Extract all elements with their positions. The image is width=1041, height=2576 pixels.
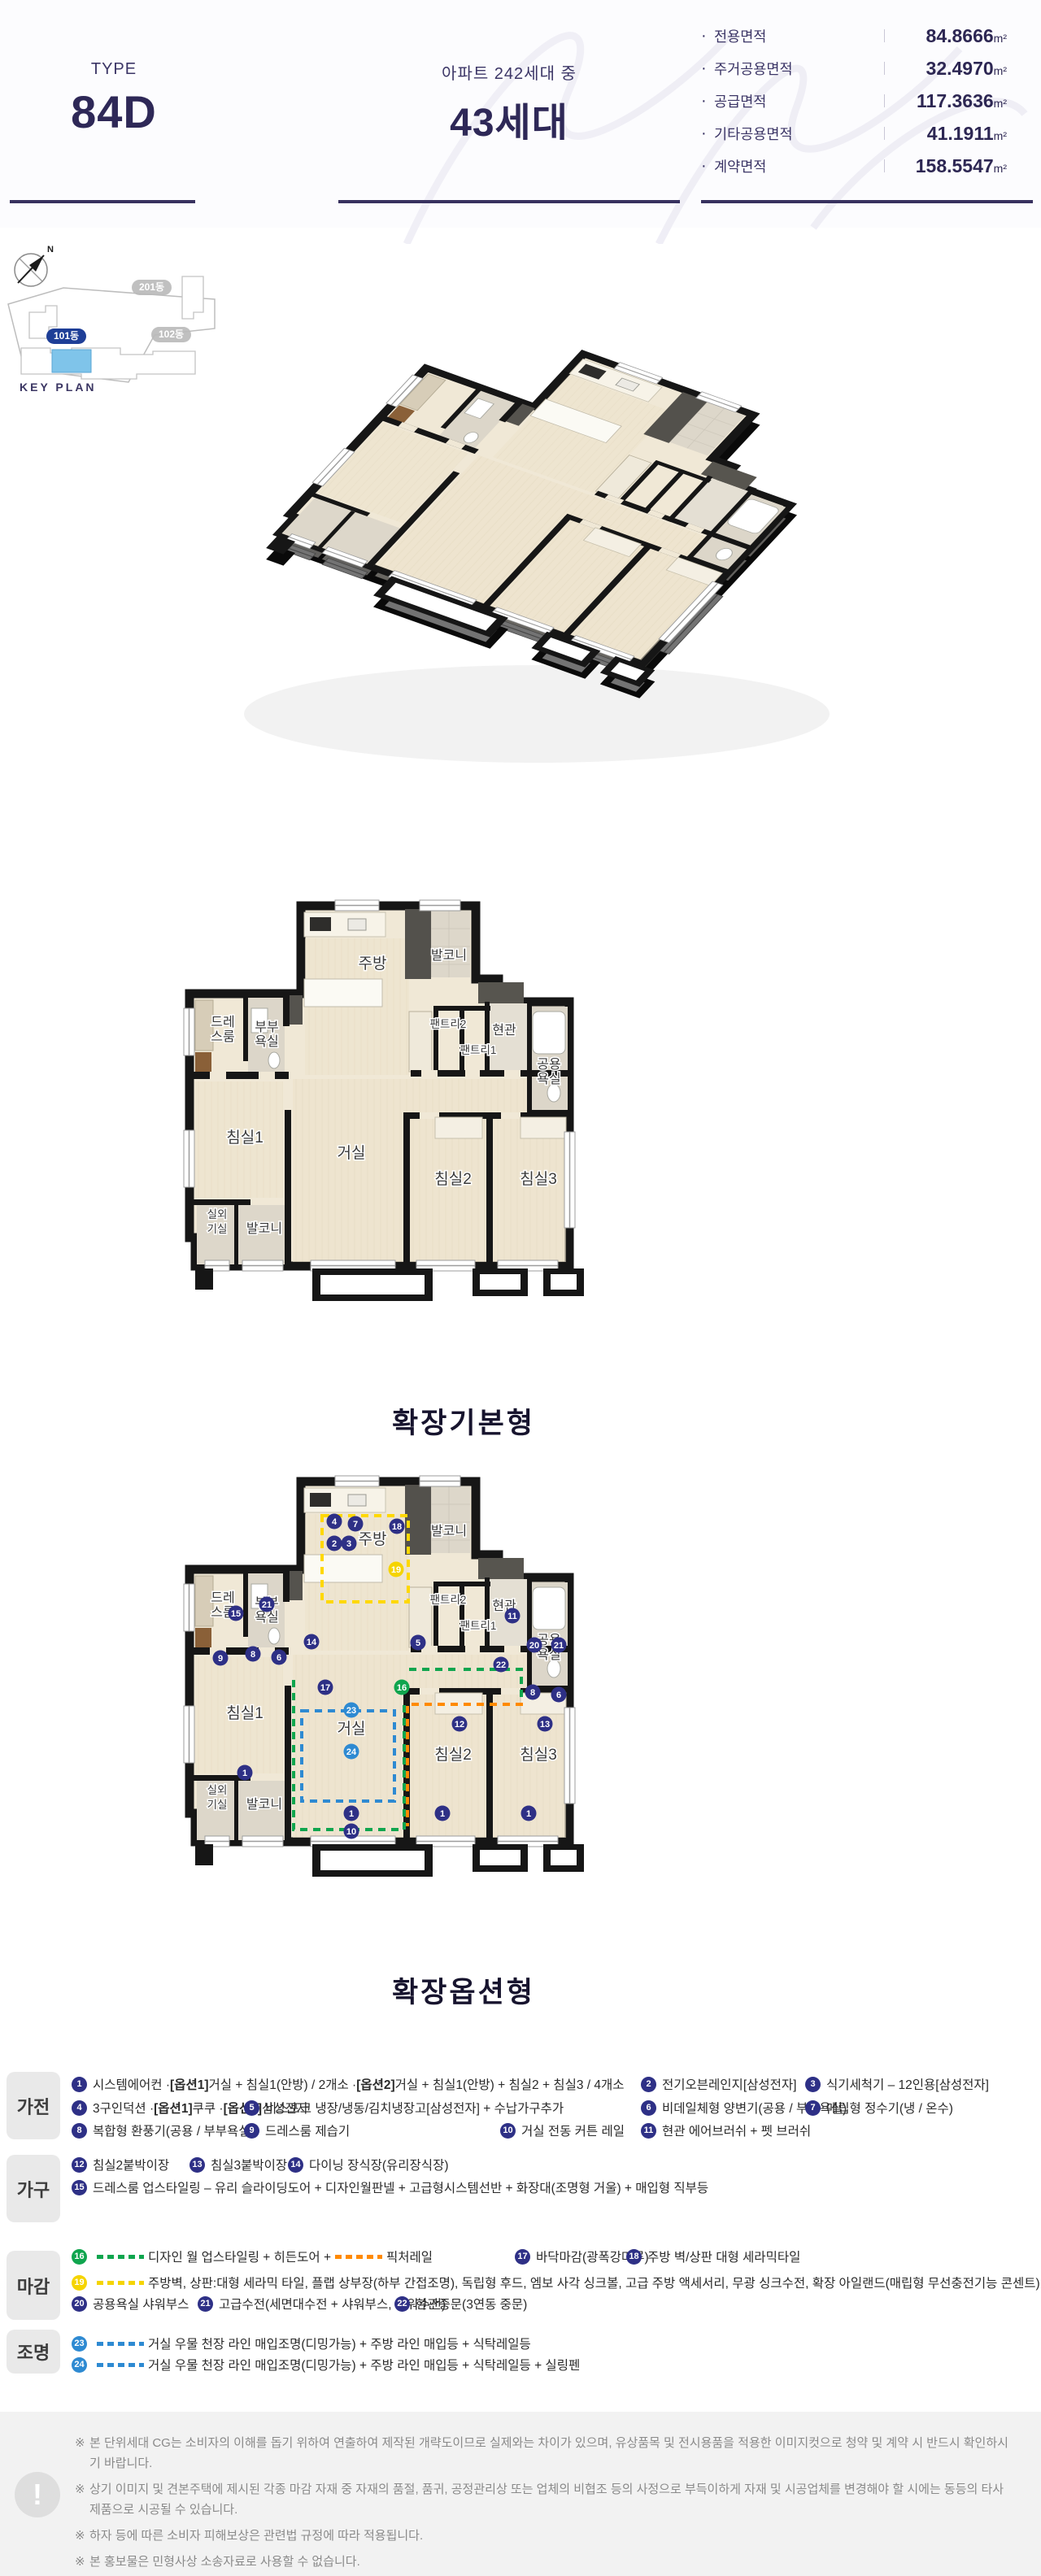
- units-label: 아파트 242세대 중: [338, 60, 680, 84]
- legend-item: 7매립형 정수기(냉 / 온수): [805, 2099, 953, 2117]
- legend-item: 24거실 우물 천장 라인 매입조명(디밍가능) + 주방 라인 매입등 + 식…: [72, 2356, 580, 2374]
- disclaimer-note: ※하자 등에 따른 소비자 피해보상은 관련법 규정에 따라 적용됩니다.: [75, 2526, 1010, 2546]
- legend-item: 20공용욕실 샤워부스: [72, 2295, 189, 2313]
- legend-item: 1시스템에어컨 · [옵션1] 거실 + 침실1(안방) / 2개소 · [옵션…: [72, 2075, 625, 2093]
- header: TYPE 84D 아파트 242세대 중 43세대 ·전용면적84.8666m²…: [0, 0, 1041, 228]
- legend-badge: 19: [72, 2275, 87, 2291]
- legend-badge: 8: [72, 2123, 87, 2139]
- svg-text:12: 12: [455, 1720, 464, 1730]
- room-label: 팬트리2: [430, 1018, 467, 1030]
- legend-badge: 14: [288, 2157, 303, 2173]
- legend-badge: 10: [500, 2123, 516, 2139]
- legend-group-chip: 마감: [7, 2251, 60, 2320]
- units-value: 43세대: [338, 90, 680, 147]
- svg-text:1: 1: [440, 1809, 445, 1819]
- legend-group-chip: 가전: [7, 2072, 60, 2139]
- svg-text:18: 18: [392, 1522, 402, 1532]
- legend-item: 16디자인 월 업스타일링 + 히든도어 + 픽처레일: [72, 2247, 433, 2265]
- svg-text:21: 21: [554, 1641, 564, 1651]
- room-label: 팬트리1: [460, 1620, 497, 1632]
- svg-text:3: 3: [346, 1539, 351, 1549]
- svg-text:6: 6: [556, 1690, 561, 1700]
- legend-badge: 2: [641, 2077, 656, 2092]
- svg-text:1: 1: [242, 1769, 247, 1778]
- legend-group-chip: 가구: [7, 2155, 60, 2222]
- legend-item: 8복합형 환풍기(공용 / 부부욕실): [72, 2121, 255, 2139]
- room-label: 주방: [359, 1530, 387, 1548]
- svg-text:N: N: [47, 245, 54, 255]
- legend-badge: 4: [72, 2100, 87, 2116]
- dash-swatch: [97, 2342, 144, 2346]
- isometric-render: [155, 259, 903, 783]
- legend-badge: 22: [394, 2296, 410, 2312]
- legend-item: 19주방벽, 상판:대형 세라믹 타일, 플랩 상부장(하부 간접조명), 독립…: [72, 2274, 1040, 2291]
- floorplan-option: 주방발코니드레스룸부부욕실팬트리2현관팬트리1공용욕실침실1거실침실2침실3실외…: [163, 1464, 602, 1935]
- legend-badge: 21: [198, 2296, 213, 2312]
- area-row: ·기타공용면적41.1911m²: [701, 117, 1033, 150]
- svg-text:21: 21: [262, 1600, 272, 1610]
- room-label: 팬트리2: [430, 1594, 467, 1606]
- svg-text:11: 11: [507, 1612, 517, 1621]
- disclaimer-note: ※본 홍보물은 민형사상 소송자료로 사용할 수 없습니다.: [75, 2552, 1010, 2572]
- room-label: 발코니: [431, 948, 467, 963]
- area-table: ·전용면적84.8666m²·주거공용면적32.4970m²·공급면적117.3…: [701, 20, 1033, 182]
- svg-text:2: 2: [332, 1539, 337, 1549]
- legend-badge: 1: [72, 2077, 87, 2092]
- area-row: ·전용면적84.8666m²: [701, 20, 1033, 52]
- svg-text:23: 23: [346, 1706, 356, 1716]
- legend-item: 15드레스룸 업스타일링 – 유리 슬라이딩도어 + 디자인월판넬 + 고급형시…: [72, 2178, 708, 2196]
- disclaimer-note: ※상기 이미지 및 견본주택에 제시된 각종 마감 자재 중 자재의 품절, 품…: [75, 2479, 1010, 2520]
- legend-badge: 20: [72, 2296, 87, 2312]
- legend-item: 3식기세척기 – 12인용[삼성전자]: [805, 2075, 989, 2093]
- header-underline: [10, 200, 195, 203]
- room-label: 침실1: [226, 1129, 264, 1147]
- legend-item: 23거실 우물 천장 라인 매입조명(디밍가능) + 주방 라인 매입등 + 식…: [72, 2334, 531, 2352]
- type-block: TYPE 84D: [24, 60, 203, 138]
- legend-item: 12침실2붙박이장: [72, 2156, 169, 2173]
- legend-badge: 15: [72, 2180, 87, 2195]
- svg-text:24: 24: [346, 1747, 357, 1757]
- dash-swatch: [335, 2255, 382, 2259]
- svg-text:20: 20: [529, 1641, 539, 1651]
- svg-text:5: 5: [416, 1638, 420, 1648]
- legend-item: 18주방 벽/상판 대형 세라믹타일: [626, 2247, 800, 2265]
- legend-badge: 23: [72, 2336, 87, 2352]
- svg-text:9: 9: [218, 1654, 223, 1664]
- legend-item: 2전기오븐레인지[삼성전자]: [641, 2075, 796, 2093]
- room-label: 발코니: [246, 1797, 282, 1812]
- footer-disclaimer: ! ※본 단위세대 CG는 소비자의 이해를 돕기 위하여 연출하여 제작된 개…: [0, 2412, 1041, 2576]
- key-plan-title: KEY PLAN: [20, 381, 97, 394]
- dash-swatch: [97, 2281, 144, 2285]
- room-label: 팬트리1: [460, 1044, 497, 1056]
- units-block: 아파트 242세대 중 43세대: [338, 60, 680, 147]
- svg-text:4: 4: [332, 1517, 338, 1527]
- room-label: 침실3: [520, 1746, 557, 1764]
- legend-badge: 5: [244, 2100, 259, 2116]
- type-label: TYPE: [24, 60, 203, 79]
- disclaimer-note: ※본 단위세대 CG는 소비자의 이해를 돕기 위하여 연출하여 제작된 개략도…: [75, 2433, 1010, 2474]
- floorplan-basic: 주방발코니드레스룸부부욕실팬트리2현관팬트리1공용욕실침실1거실침실2침실3실외…: [163, 888, 602, 1360]
- svg-text:15: 15: [231, 1609, 241, 1619]
- svg-text:13: 13: [540, 1720, 550, 1730]
- compass-icon: N: [15, 245, 54, 286]
- legend-item: 11현관 에어브러쉬 + 펫 브러쉬: [641, 2121, 811, 2139]
- room-label: 침실2: [434, 1170, 472, 1188]
- svg-text:1: 1: [526, 1809, 531, 1819]
- building-label: 101동: [46, 329, 86, 344]
- svg-text:10: 10: [346, 1827, 356, 1837]
- room-label: 현관: [492, 1023, 516, 1038]
- legend-badge: 12: [72, 2157, 87, 2173]
- legend-item: 22현관중문(3연동 중문): [394, 2295, 527, 2313]
- legend-badge: 6: [641, 2100, 656, 2116]
- svg-text:1: 1: [349, 1809, 354, 1819]
- svg-text:6: 6: [277, 1653, 281, 1663]
- room-label: 침실2: [434, 1746, 472, 1764]
- header-underline: [338, 200, 680, 203]
- svg-text:22: 22: [496, 1660, 506, 1670]
- area-row: ·주거공용면적32.4970m²: [701, 52, 1033, 85]
- room-label: 침실3: [520, 1170, 557, 1188]
- room-label: 침실1: [226, 1704, 264, 1722]
- legend-badge: 16: [72, 2249, 87, 2265]
- svg-text:16: 16: [397, 1683, 407, 1693]
- area-row: ·공급면적117.3636m²: [701, 85, 1033, 117]
- room-label: 주방: [359, 955, 387, 973]
- svg-text:17: 17: [320, 1683, 330, 1693]
- legend-item: 9드레스룸 제습기: [244, 2121, 350, 2139]
- room-label: 거실: [338, 1144, 366, 1162]
- area-row: ·계약면적158.5547m²: [701, 150, 1033, 182]
- dash-swatch: [97, 2255, 144, 2259]
- room-label: 거실: [338, 1720, 366, 1738]
- svg-text:19: 19: [391, 1565, 401, 1575]
- room-label: 발코니: [246, 1221, 282, 1236]
- svg-text:14: 14: [307, 1638, 317, 1647]
- legend-item: 14다이닝 장식장(유리장식장): [288, 2156, 449, 2173]
- legend-item: 5비스포크 냉장/냉동/김치냉장고[삼성전자] + 수납가구추가: [244, 2099, 564, 2117]
- legend-badge: 17: [515, 2249, 530, 2265]
- exclamation-icon: !: [15, 2472, 60, 2517]
- floorplan-option-title: 확장옵션형: [0, 1969, 927, 2011]
- legend-badge: 3: [805, 2077, 821, 2092]
- svg-text:8: 8: [250, 1650, 255, 1660]
- room-label: 발코니: [431, 1524, 467, 1538]
- legend-badge: 11: [641, 2123, 656, 2139]
- dash-swatch: [97, 2363, 144, 2367]
- legend-item: 13침실3붙박이장: [189, 2156, 287, 2173]
- legend-badge: 7: [805, 2100, 821, 2116]
- legend-group-chip: 조명: [7, 2330, 60, 2374]
- highlighted-building: [52, 350, 91, 372]
- legend-badge: 9: [244, 2123, 259, 2139]
- type-value: 84D: [24, 85, 203, 138]
- floorplan-basic-title: 확장기본형: [0, 1400, 927, 1442]
- legend-badge: 18: [626, 2249, 642, 2265]
- legend-item: 10거실 전동 커튼 레일: [500, 2121, 625, 2139]
- room-label: 부부욕실: [255, 1020, 278, 1049]
- legend-badge: 13: [189, 2157, 205, 2173]
- svg-text:7: 7: [353, 1520, 358, 1529]
- header-underline: [701, 200, 1033, 203]
- svg-text:8: 8: [530, 1688, 535, 1698]
- legend-badge: 24: [72, 2357, 87, 2373]
- brochure-page: TYPE 84D 아파트 242세대 중 43세대 ·전용면적84.8666m²…: [0, 0, 1041, 2576]
